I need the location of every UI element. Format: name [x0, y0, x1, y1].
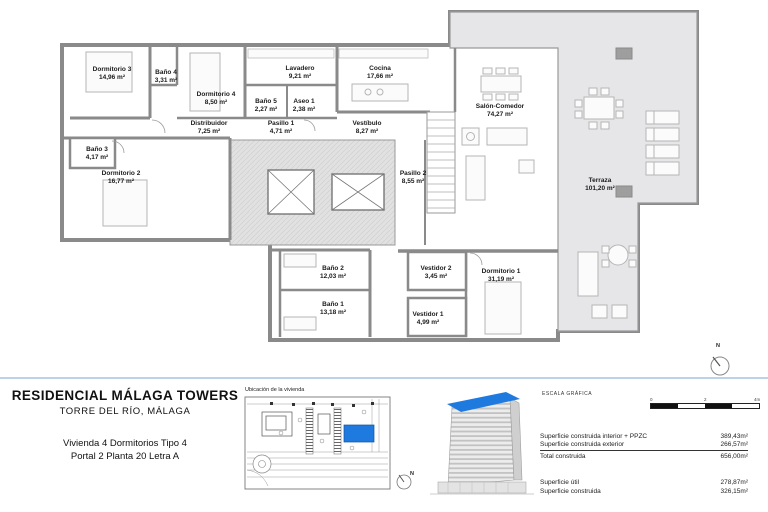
room-label: Baño 34,17 m²: [86, 146, 108, 161]
room-label: Baño 43,31 m²: [155, 69, 177, 84]
room-label: Pasillo 14,71 m²: [268, 120, 294, 135]
scale-segments: [650, 403, 760, 409]
unit-location: Portal 2 Planta 20 Letra A: [10, 451, 240, 464]
table-row: Superficie construida 326,15m²: [540, 488, 748, 496]
armchair-icon: [519, 160, 534, 173]
building-core: [230, 140, 395, 245]
tv-unit-icon: [462, 128, 479, 145]
scale-tick: 4m: [754, 397, 760, 402]
brochure-page: { "colors": { "accent": "#1f7ae0", "wall…: [0, 0, 768, 512]
room-label: Vestidor 14,99 m²: [412, 311, 443, 326]
unit-description: Vivienda 4 Dormitorios Tipo 4 Portal 2 P…: [10, 438, 240, 464]
room-label: Salón-Comedor74,27 m²: [476, 103, 524, 118]
terrace-lounger-icon: [578, 252, 598, 296]
surface-value: 278,87m²: [721, 479, 748, 487]
room-label: Baño 52,27 m²: [255, 98, 277, 113]
surface-label: Total construida: [540, 453, 586, 461]
room-label: Distribuidor7,25 m²: [191, 120, 228, 135]
surface-label: Superficie construida: [540, 488, 601, 496]
ottoman-icon: [612, 305, 627, 318]
staircase: [427, 112, 455, 213]
rail-tracks: [334, 408, 341, 454]
room-label: Dormitorio 131,19 m²: [482, 268, 521, 283]
room-label: Cocina17,66 m²: [367, 65, 393, 80]
bathtub-icon: [284, 254, 316, 267]
kitchen-island-icon: [352, 84, 408, 101]
surface-value: 326,15m²: [721, 488, 748, 496]
room-label: Pasillo 28,55 m²: [400, 170, 426, 185]
elevator-icon: [332, 174, 384, 210]
kitchen-counter-icon: [339, 49, 428, 58]
compass-north-label: N: [716, 343, 720, 349]
table-row: Superficie útil 278,87m²: [540, 479, 748, 487]
ottoman-icon: [592, 305, 607, 318]
scale-tick: 2: [704, 397, 707, 402]
table-row: Superficie construida exterior 266,57m²: [540, 441, 748, 449]
room-label: Terraza101,20 m²: [585, 177, 615, 192]
scale-bar: 0 2 4m: [650, 397, 762, 409]
scale-title: ESCALA GRÁFICA: [542, 391, 592, 397]
floor-plan: [62, 12, 729, 375]
bed-icon: [485, 282, 521, 334]
scale-tick: 0: [650, 397, 653, 402]
surface-value: 266,57m²: [721, 441, 748, 449]
room-label: Baño 113,18 m²: [320, 301, 346, 316]
room-label: Vestidor 23,45 m²: [420, 265, 451, 280]
tower-render: [430, 392, 534, 494]
room-label: Aseo 12,38 m²: [293, 98, 315, 113]
laundry-counter-icon: [248, 49, 334, 58]
room-label: Dormitorio 48,50 m²: [197, 91, 236, 106]
room-label: Dormitorio 216,77 m²: [102, 170, 141, 185]
rail-tracks: [306, 408, 313, 454]
compass-icon: [397, 475, 411, 489]
sofa-icon: [466, 156, 485, 200]
room-label: Lavadero9,21 m²: [286, 65, 315, 80]
surface-value: 389,43m²: [721, 433, 748, 441]
bed-icon: [103, 180, 147, 226]
page-title: RESIDENCIAL MÁLAGA TOWERS: [10, 388, 240, 403]
compass-north-label: N: [410, 471, 414, 477]
roundabout: [253, 455, 271, 473]
project-block: RESIDENCIAL MÁLAGA TOWERS TORRE DEL RÍO,…: [10, 388, 240, 464]
map-building: [318, 414, 330, 434]
location-map: [245, 397, 390, 489]
dining-table-icon: [481, 68, 521, 100]
surface-value: 656,00m²: [721, 453, 748, 461]
elevator-icon: [268, 170, 314, 214]
page-subtitle: TORRE DEL RÍO, MÁLAGA: [10, 406, 240, 417]
planter-icon: [616, 186, 632, 197]
table-row: Superficie construida interior + PPZC 38…: [540, 433, 748, 441]
surface-areas-table: Superficie construida interior + PPZC 38…: [540, 433, 748, 496]
table-row: Total construida 656,00m²: [540, 453, 748, 461]
surface-label: Superficie útil: [540, 479, 579, 487]
room-label: Baño 212,03 m²: [320, 265, 346, 280]
surface-label: Superficie construida interior + PPZC: [540, 433, 647, 441]
room-label: Dormitorio 314,96 m²: [93, 66, 132, 81]
unit-type: Vivienda 4 Dormitorios Tipo 4: [10, 438, 240, 451]
bathtub-icon: [284, 317, 316, 330]
surface-label: Superficie construida exterior: [540, 441, 624, 449]
scale-tick-labels: 0 2 4m: [650, 397, 762, 403]
compass-icon: [711, 357, 729, 375]
room-label: Vestíbulo8,27 m²: [353, 120, 382, 135]
table-divider: [540, 450, 748, 451]
sofa-icon: [487, 128, 527, 145]
map-highlight-building: [344, 425, 374, 442]
section-divider: [0, 377, 768, 379]
planter-icon: [616, 48, 632, 59]
location-map-title: Ubicación de la vivienda: [245, 387, 304, 393]
